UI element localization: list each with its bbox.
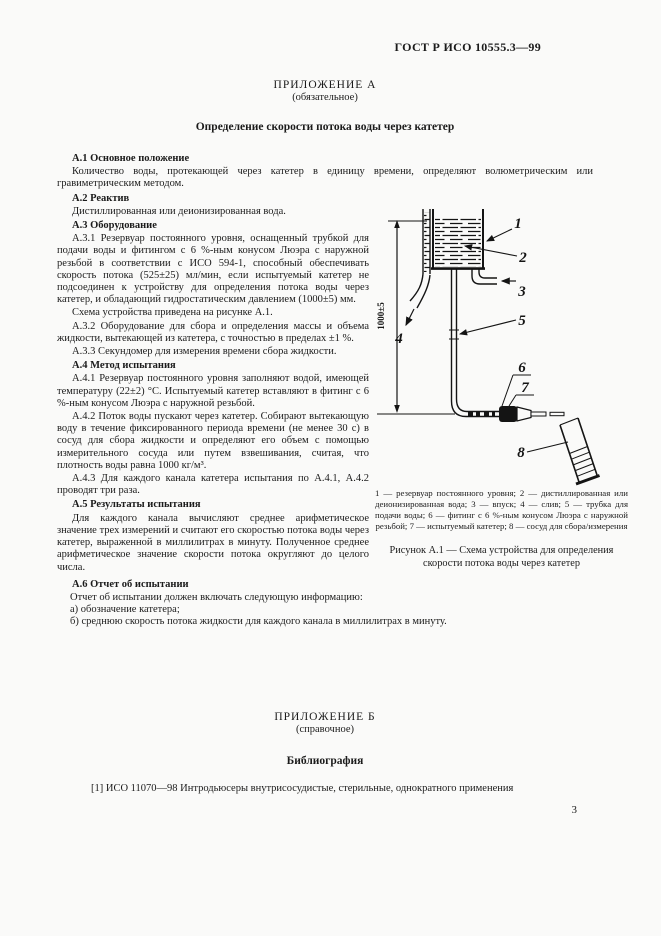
appendix-b: ПРИЛОЖЕНИЕ Б (справочное) Библиография [… [57, 711, 593, 794]
overflow-standpipe [410, 209, 430, 308]
page-number: 3 [57, 804, 577, 816]
appendix-a-kind: (обязательное) [57, 92, 593, 103]
measuring-cylinder [560, 418, 600, 484]
callout-8: 8 [517, 442, 568, 461]
tube-segments [468, 411, 495, 416]
svg-text:1: 1 [514, 216, 522, 232]
figure-a1: 1000±5 4 [375, 194, 628, 571]
inlet-tube [472, 269, 497, 284]
dimension-label: 1000±5 [376, 301, 386, 329]
appendix-a-title: Определение скорости потока воды через к… [57, 121, 593, 133]
section-a6-list-item: а) обозначение катетера; [57, 604, 593, 616]
appendix-b-label: ПРИЛОЖЕНИЕ Б [57, 711, 593, 723]
page-background: { "doc": { "standard_number": "ГОСТ Р ИС… [0, 0, 661, 936]
bibliography-reference: [1] ИСО 11070—98 Интродьюсеры внутрисосу… [57, 783, 593, 794]
section-a6: А.6 Отчет об испытании Отчет об испытани… [57, 575, 593, 629]
section-a6-list-item: б) среднюю скорость потока жидкости для … [57, 616, 593, 628]
supply-tube [449, 269, 499, 417]
svg-text:4: 4 [394, 331, 403, 347]
appendix-b-kind: (справочное) [57, 724, 593, 735]
section-a6-paragraph: Отчет об испытании должен включать следу… [57, 592, 593, 604]
flow-apparatus-diagram: 1000±5 4 [375, 194, 628, 486]
callout-5: 5 [460, 313, 526, 334]
section-a6-heading: А.6 Отчет об испытании [57, 579, 593, 591]
svg-text:6: 6 [518, 360, 526, 376]
appendix-a-content: А.1 Основное положение Количество воды, … [57, 153, 593, 629]
callout-3: 3 [517, 284, 526, 300]
document-page: ГОСТ Р ИСО 10555.3—99 ПРИЛОЖЕНИЕ А (обяз… [0, 0, 661, 936]
svg-text:8: 8 [517, 445, 525, 461]
figure-caption: Рисунок А.1 — Схема устройства для опред… [375, 544, 628, 571]
standard-number: ГОСТ Р ИСО 10555.3—99 [57, 40, 541, 55]
callout-4: 4 [394, 331, 403, 347]
section-a1-paragraph: Количество воды, протекающей через катет… [57, 166, 593, 190]
bibliography-title: Библиография [57, 755, 593, 767]
water-fill [435, 217, 481, 267]
drain-flow-arrow [406, 309, 414, 325]
svg-text:2: 2 [518, 250, 527, 266]
luer-fitting [499, 406, 531, 422]
callout-1: 1 [487, 216, 522, 241]
reservoir-tank [431, 209, 485, 269]
section-a1-heading: А.1 Основное положение [57, 153, 593, 165]
figure-legend: 1 — резервуар постоянного уровня; 2 — ди… [375, 488, 628, 532]
svg-text:3: 3 [517, 284, 526, 300]
svg-text:7: 7 [521, 380, 529, 396]
test-catheter [531, 412, 564, 416]
callout-7: 7 [509, 380, 534, 406]
svg-text:5: 5 [518, 313, 526, 329]
appendix-a-label: ПРИЛОЖЕНИЕ А [57, 79, 593, 91]
